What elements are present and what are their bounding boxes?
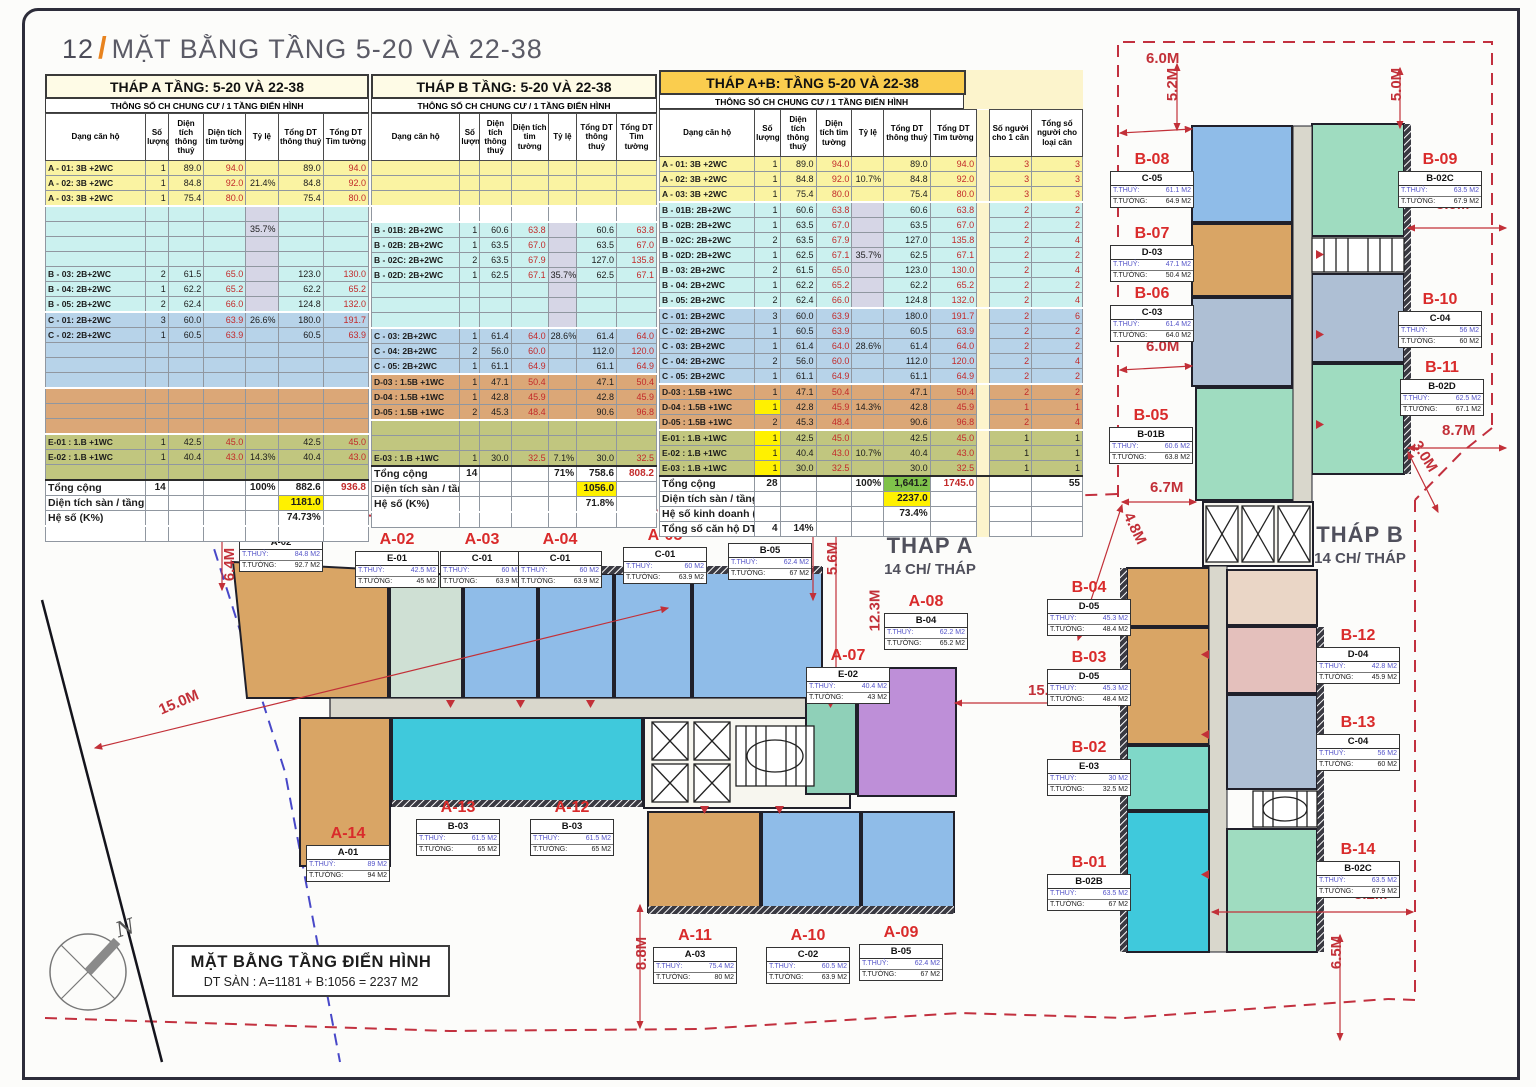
cell [246, 526, 278, 542]
table-row [46, 206, 369, 222]
cell [460, 283, 480, 298]
cell: 112.0 [577, 344, 617, 359]
cell: 14.3% [246, 450, 278, 465]
cell: 50.4 [930, 384, 977, 400]
tuong-value: 64.9 M2 [1166, 198, 1191, 205]
unit-type: B-02C [1399, 172, 1481, 186]
slash-icon: / [94, 30, 112, 65]
cell: A - 02: 3B +2WC [660, 172, 755, 187]
cell [204, 511, 246, 527]
cell: 14 [146, 480, 169, 496]
cell: 10.7% [852, 446, 884, 461]
table-row: B - 05: 2B+2WC262.466.0124.8132.0 [46, 297, 369, 313]
thuy-label: T.THUỶ: [1050, 685, 1076, 692]
cell [852, 293, 884, 309]
table-row [46, 343, 369, 358]
tower-b-title: THÁP B 14 CH/ THÁP [1280, 522, 1440, 567]
unit-number: B-02 [1047, 740, 1131, 757]
cell: 56.0 [480, 344, 511, 359]
cell: 63.5 [480, 253, 511, 268]
cell: 92.0 [816, 172, 852, 187]
thuy-value: 61.1 M2 [1166, 187, 1191, 194]
cell: 63.8 [511, 222, 548, 238]
cell [372, 161, 460, 176]
cell [989, 507, 1031, 522]
table-title: THÁP A TẦNG: 5-20 VÀ 22-38 [45, 74, 369, 99]
thuy-label: T.THUỶ: [1113, 187, 1139, 194]
cell: 50.4 [816, 384, 852, 400]
unit-type: C-02 [767, 948, 849, 962]
cell [480, 482, 511, 497]
cell: 808.2 [617, 466, 657, 482]
unit-type: B-01B [1110, 428, 1192, 442]
cell [852, 233, 884, 248]
unit-callout-A-13: A-13B-03T.THUỶ:61.5 M2T.TƯỜNG:65 M2 [416, 800, 500, 856]
cell [46, 237, 146, 252]
cell: C - 04: 2B+2WC [660, 354, 755, 369]
cell: 64.9 [930, 369, 977, 385]
cell [146, 237, 169, 252]
cell: 2 [755, 354, 780, 369]
cell [1032, 522, 1083, 537]
cell: 42.8 [884, 400, 931, 415]
cell [852, 461, 884, 477]
table-row: B - 05: 2B+2WC262.466.0124.8132.024 [660, 293, 1083, 309]
cell: 90.6 [577, 405, 617, 421]
tower-a-subtitle: 14 CH/ THÁP [850, 561, 1010, 578]
cell [977, 157, 990, 172]
cell: A - 02: 3B +2WC [46, 176, 146, 191]
tuong-label: T.TƯỜNG: [1113, 272, 1147, 279]
cell [989, 522, 1031, 537]
unit-type: C-04 [1317, 735, 1399, 749]
unit-info-box: B-01BT.THUỶ:60.6 M2T.TƯỜNG:63.8 M2 [1109, 427, 1193, 464]
cell [977, 507, 990, 522]
thuy-value: 60.5 M2 [822, 963, 847, 970]
cell [146, 465, 169, 481]
unit-callout-B-05: B-05B-01BT.THUỶ:60.6 M2T.TƯỜNG:63.8 M2 [1109, 408, 1193, 464]
cell: 1 [460, 222, 480, 238]
cell: 96.8 [930, 415, 977, 431]
cell: 1 [989, 461, 1031, 477]
tuong-value: 67.1 M2 [1456, 406, 1481, 413]
cell: 94.0 [816, 157, 852, 172]
cell: 1 [989, 446, 1031, 461]
tuong-label: T.TƯỜNG: [809, 694, 843, 701]
cell [246, 434, 278, 450]
table-row [372, 161, 657, 176]
cell [548, 253, 577, 268]
cell: 43.0 [323, 450, 368, 465]
cell: 124.8 [278, 297, 323, 313]
cell: 1 [989, 400, 1031, 415]
cell: 3 [1032, 172, 1083, 187]
column-header: Tổng DT Tim tường [323, 114, 368, 161]
cell: 1 [989, 430, 1031, 446]
table-row: A - 02: 3B +2WC184.892.010.7%84.892.033 [660, 172, 1083, 187]
column-header: Tổng DT thông thuỷ [278, 114, 323, 161]
cell [548, 374, 577, 390]
cell: 1 [755, 339, 780, 354]
thuy-label: T.THUỶ: [626, 563, 652, 570]
cell: 2 [755, 263, 780, 278]
table-row: B - 01B: 2B+2WC160.663.860.663.822 [660, 202, 1083, 218]
cell [548, 390, 577, 405]
table-row [46, 465, 369, 481]
cell [511, 298, 548, 313]
cell: 1 [146, 176, 169, 191]
table-row: E-02 : 1.B +1WC140.443.010.7%40.443.011 [660, 446, 1083, 461]
cell: 2 [989, 415, 1031, 431]
table-row: B - 04: 2B+2WC162.265.262.265.2 [46, 282, 369, 297]
cell [977, 446, 990, 461]
thuy-label: T.THUỶ: [1050, 890, 1076, 897]
cell: 80.0 [816, 187, 852, 203]
column-header: Số lượng [460, 114, 480, 161]
tuong-value: 63.9 M2 [679, 574, 704, 581]
unit-info-box: C-03T.THUỶ:61.4 M2T.TƯỜNG:64.0 M2 [1110, 305, 1194, 342]
cell: 63.5 [480, 238, 511, 253]
cell: 1 [1032, 400, 1083, 415]
cell: 67.0 [511, 238, 548, 253]
cell: 89.0 [168, 161, 204, 176]
unit-callout-B-01: B-01B-02BT.THUỶ:63.5 M2T.TƯỜNG:67 M2 [1047, 855, 1131, 911]
tuong-value: 32.5 M2 [1103, 786, 1128, 793]
cell [46, 252, 146, 267]
tuong-label: T.TƯỜNG: [1401, 198, 1435, 205]
thuy-value: 89 M2 [368, 861, 387, 868]
thuy-label: T.THUỶ: [769, 963, 795, 970]
cell: 132.0 [930, 293, 977, 309]
unit-info-box: E-03T.THUỶ:30 M2T.TƯỜNG:32.5 M2 [1047, 759, 1131, 796]
cell: 32.5 [930, 461, 977, 477]
cell: 60.0 [780, 308, 816, 324]
unit-info-box: C-04T.THUỶ:56 M2T.TƯỜNG:60 M2 [1316, 734, 1400, 771]
cell [480, 176, 511, 191]
cell: 65.2 [816, 278, 852, 293]
tuong-label: T.TƯỜNG: [1319, 761, 1353, 768]
cell: 35.7% [548, 268, 577, 283]
column-header: Tỷ lệ [852, 110, 884, 157]
thuy-value: 63.5 M2 [1372, 877, 1397, 884]
cell [460, 482, 480, 497]
cell: 7.1% [548, 451, 577, 467]
cell [323, 465, 368, 481]
column-header: Số lượng [755, 110, 780, 157]
thuy-label: T.THUỶ: [1319, 877, 1345, 884]
cell: 1,641.2 [884, 476, 931, 492]
cell [977, 384, 990, 400]
column-header: Số lượng [146, 114, 169, 161]
tower-b-subtitle: 14 CH/ THÁP [1280, 550, 1440, 567]
cell: 65.2 [323, 282, 368, 297]
table-thap-ab: THÁP A+B: TẦNG 5-20 VÀ 22-38THÔNG SỐ CH … [659, 70, 1083, 537]
cell: 100% [852, 476, 884, 492]
cell [617, 497, 657, 513]
dimension-label: 8.8M [633, 937, 650, 970]
tuong-value: 65 M2 [592, 846, 611, 853]
cell: 2 [989, 218, 1031, 233]
unit-callout-A-11: A-11A-03T.THUỶ:75.4 M2T.TƯỜNG:80 M2 [653, 928, 737, 984]
cell [816, 492, 852, 507]
cell [323, 358, 368, 373]
cell [480, 206, 511, 222]
unit-type: B-02B [1048, 875, 1130, 889]
cell: 3 [989, 172, 1031, 187]
cell: 63.5 [780, 233, 816, 248]
cell: 67.1 [617, 268, 657, 283]
unit-type: A-03 [654, 948, 736, 962]
dimension-label: 5.6M [824, 542, 841, 575]
cell: D-04 : 1.5B +1WC [372, 390, 460, 405]
cell: 61.5 [168, 267, 204, 282]
cell [323, 373, 368, 389]
thuy-label: T.THUỶ: [443, 567, 469, 574]
dimension-label: 5.0M [1388, 68, 1405, 101]
thuy-label: T.THUỶ: [533, 835, 559, 842]
unit-number: A-11 [653, 928, 737, 945]
cell [977, 308, 990, 324]
table-title: THÁP B TẦNG: 5-20 VÀ 22-38 [371, 74, 657, 99]
tuong-value: 94 M2 [368, 872, 387, 879]
tuong-value: 63.9 M2 [822, 974, 847, 981]
cell [989, 476, 1031, 492]
unit-number: A-10 [766, 928, 850, 945]
table-row [46, 526, 369, 542]
table-row: B - 02C: 2B+2WC263.567.9127.0135.8 [372, 253, 657, 268]
unit-number: A-14 [306, 826, 390, 843]
cell: 64.0 [511, 328, 548, 344]
table-subtitle: THÔNG SỐ CH CHUNG CƯ / 1 TẦNG ĐIỂN HÌNH [45, 99, 369, 113]
cell: 63.5 [577, 238, 617, 253]
cell: 130.0 [930, 263, 977, 278]
cell [852, 492, 884, 507]
cell: 135.8 [617, 253, 657, 268]
cell [577, 191, 617, 207]
cell [977, 248, 990, 263]
cell [816, 476, 852, 492]
tuong-label: T.TƯỜNG: [1403, 406, 1437, 413]
thuy-value: 62.5 M2 [1456, 395, 1481, 402]
cell: 2 [989, 202, 1031, 218]
table-row: D-04 : 1.5B +1WC142.845.942.845.9 [372, 390, 657, 405]
unit-number: A-03 [440, 532, 524, 549]
cell: 21.4% [246, 176, 278, 191]
cell [460, 176, 480, 191]
tuong-label: T.TƯỜNG: [887, 640, 921, 647]
unit-callout-B-08: B-08C-05T.THUỶ:61.1 M2T.TƯỜNG:64.9 M2 [1110, 152, 1194, 208]
cell: 61.1 [884, 369, 931, 385]
cell [617, 420, 657, 436]
cell: 2 [1032, 278, 1083, 293]
cell [46, 526, 146, 542]
cell: 63.8 [816, 202, 852, 218]
cell [278, 465, 323, 481]
thuy-label: T.THUỶ: [809, 683, 835, 690]
cell [480, 436, 511, 451]
cell: 47.1 [480, 374, 511, 390]
cell: 45.9 [930, 400, 977, 415]
cell: 67.1 [930, 248, 977, 263]
cell: 42.8 [480, 390, 511, 405]
table-row: D-03 : 1.5B +1WC147.150.447.150.422 [660, 384, 1083, 400]
unit-info-box: C-01T.THUỶ:60 M2T.TƯỜNG:63.9 M2 [518, 551, 602, 588]
cell: 47.1 [780, 384, 816, 400]
cell: 28.6% [548, 328, 577, 344]
cell [577, 313, 617, 329]
cell [323, 388, 368, 404]
thuy-value: 62.2 M2 [940, 629, 965, 636]
cell [577, 161, 617, 176]
cell: 3 [1032, 187, 1083, 203]
cell: 55 [1032, 476, 1083, 492]
column-header: Số người cho 1 căn [989, 110, 1031, 157]
cell [617, 436, 657, 451]
tuong-label: T.TƯỜNG: [1050, 626, 1084, 633]
cell: 42.8 [577, 390, 617, 405]
cell [977, 263, 990, 278]
cell [511, 191, 548, 207]
page-title: 12/MẶT BẰNG TẦNG 5-20 VÀ 22-38 [62, 30, 543, 66]
cell [852, 308, 884, 324]
cell: 1 [1032, 446, 1083, 461]
unit-info-box: D-04T.THUỶ:42.8 M2T.TƯỜNG:45.9 M2 [1316, 647, 1400, 684]
cell: 127.0 [577, 253, 617, 268]
table-row [46, 237, 369, 252]
cell: 64.9 [617, 359, 657, 375]
cell [617, 298, 657, 313]
cell: 4 [755, 522, 780, 537]
cell [977, 233, 990, 248]
tuong-label: T.TƯỜNG: [358, 578, 392, 585]
cell: 43.0 [930, 446, 977, 461]
cell: 94.0 [323, 161, 368, 176]
unit-callout-A-04: A-04C-01T.THUỶ:60 M2T.TƯỜNG:63.9 M2 [518, 532, 602, 588]
thuy-value: 42.8 M2 [1372, 663, 1397, 670]
cell: 66.0 [204, 297, 246, 313]
cell [146, 388, 169, 404]
page-number: 12 [62, 34, 94, 64]
cell: 30.0 [480, 451, 511, 467]
cell: 1 [755, 461, 780, 477]
tuong-label: T.TƯỜNG: [1112, 454, 1146, 461]
tuong-value: 67.9 M2 [1372, 888, 1397, 895]
cell: 62.2 [168, 282, 204, 297]
table-row [46, 252, 369, 267]
cell [46, 465, 146, 481]
cell [977, 430, 990, 446]
dimension-label: 12.3M [866, 590, 883, 632]
cell [168, 237, 204, 252]
tuong-value: 48.4 M2 [1103, 696, 1128, 703]
cell [548, 482, 577, 497]
cell: 130.0 [323, 267, 368, 282]
cell: 127.0 [884, 233, 931, 248]
cell: 1 [146, 434, 169, 450]
unit-callout-A-09: A-09B-05T.THUỶ:62.4 M2T.TƯỜNG:67 M2 [859, 925, 943, 981]
cell [46, 404, 146, 419]
header-row: Dạng căn hộSố lượngDiện tích thông thuỷD… [372, 114, 657, 161]
unit-type: C-01 [624, 548, 706, 562]
cell: 74.73% [278, 511, 323, 527]
unit-type: C-01 [519, 552, 601, 566]
unit-callout-B-03: B-03D-05T.THUỶ:45.3 M2T.TƯỜNG:48.4 M2 [1047, 650, 1131, 706]
cell [168, 206, 204, 222]
unit-type: D-04 [1317, 648, 1399, 662]
cell [548, 283, 577, 298]
cell: 1 [146, 328, 169, 343]
cell: 60.0 [816, 354, 852, 369]
tuong-value: 64.0 M2 [1166, 332, 1191, 339]
cell [780, 492, 816, 507]
cell [323, 404, 368, 419]
table-row [46, 358, 369, 373]
cell: 43.0 [816, 446, 852, 461]
cell [852, 263, 884, 278]
cell: 47.1 [884, 384, 931, 400]
drawing-sheet: 12/MẶT BẰNG TẦNG 5-20 VÀ 22-38 [0, 0, 1536, 1087]
cell: A - 03: 3B +2WC [46, 191, 146, 207]
cell: E-01 : 1.B +1WC [46, 434, 146, 450]
table-row: D-04 : 1.5B +1WC142.845.914.3%42.845.911 [660, 400, 1083, 415]
thuy-label: T.THUỶ: [887, 629, 913, 636]
table-row [372, 283, 657, 298]
table-row: Hệ số (K%)74.73% [46, 511, 369, 527]
tuong-value: 63.9 M2 [574, 578, 599, 585]
cell [204, 252, 246, 267]
cell: Tổng cộng [660, 476, 755, 492]
cell [548, 420, 577, 436]
cell: 14 [460, 466, 480, 482]
cell [480, 313, 511, 329]
cell: 2 [989, 308, 1031, 324]
cell: 2 [989, 278, 1031, 293]
cell: 84.8 [168, 176, 204, 191]
cell [460, 298, 480, 313]
cell: 1 [460, 359, 480, 375]
thuy-label: T.THUỶ: [1319, 663, 1345, 670]
unit-type: E-03 [1048, 760, 1130, 774]
table-row: B - 02B: 2B+2WC163.567.063.567.022 [660, 218, 1083, 233]
cell: 62.5 [480, 268, 511, 283]
cell [511, 466, 548, 482]
cell: 61.4 [577, 328, 617, 344]
property-line-black [42, 600, 162, 1062]
cell: C - 01: 2B+2WC [46, 312, 146, 328]
cell: 123.0 [278, 267, 323, 282]
cell: 63.8 [930, 202, 977, 218]
unit-number: B-04 [1047, 580, 1131, 597]
unit-info-box: C-01T.THUỶ:60 M2T.TƯỜNG:63.9 M2 [623, 547, 707, 584]
cell [246, 161, 278, 176]
dimension-label: 8.7M [1442, 422, 1475, 439]
cell: 84.8 [780, 172, 816, 187]
table-row: B - 02C: 2B+2WC263.567.9127.0135.824 [660, 233, 1083, 248]
cell: 26.6% [246, 312, 278, 328]
cell: 80.0 [323, 191, 368, 207]
cell [168, 480, 204, 496]
dimension-label: 6.5M [1328, 936, 1345, 969]
table-row [372, 191, 657, 207]
column-header: Dạng căn hộ [46, 114, 146, 161]
cell: 1 [755, 172, 780, 187]
table-row: B - 02D: 2B+2WC162.567.135.7%62.567.122 [660, 248, 1083, 263]
cell [168, 511, 204, 527]
cell: 94.0 [930, 157, 977, 172]
cell: 1 [1032, 461, 1083, 477]
cell: 89.0 [278, 161, 323, 176]
cell: 75.4 [884, 187, 931, 203]
